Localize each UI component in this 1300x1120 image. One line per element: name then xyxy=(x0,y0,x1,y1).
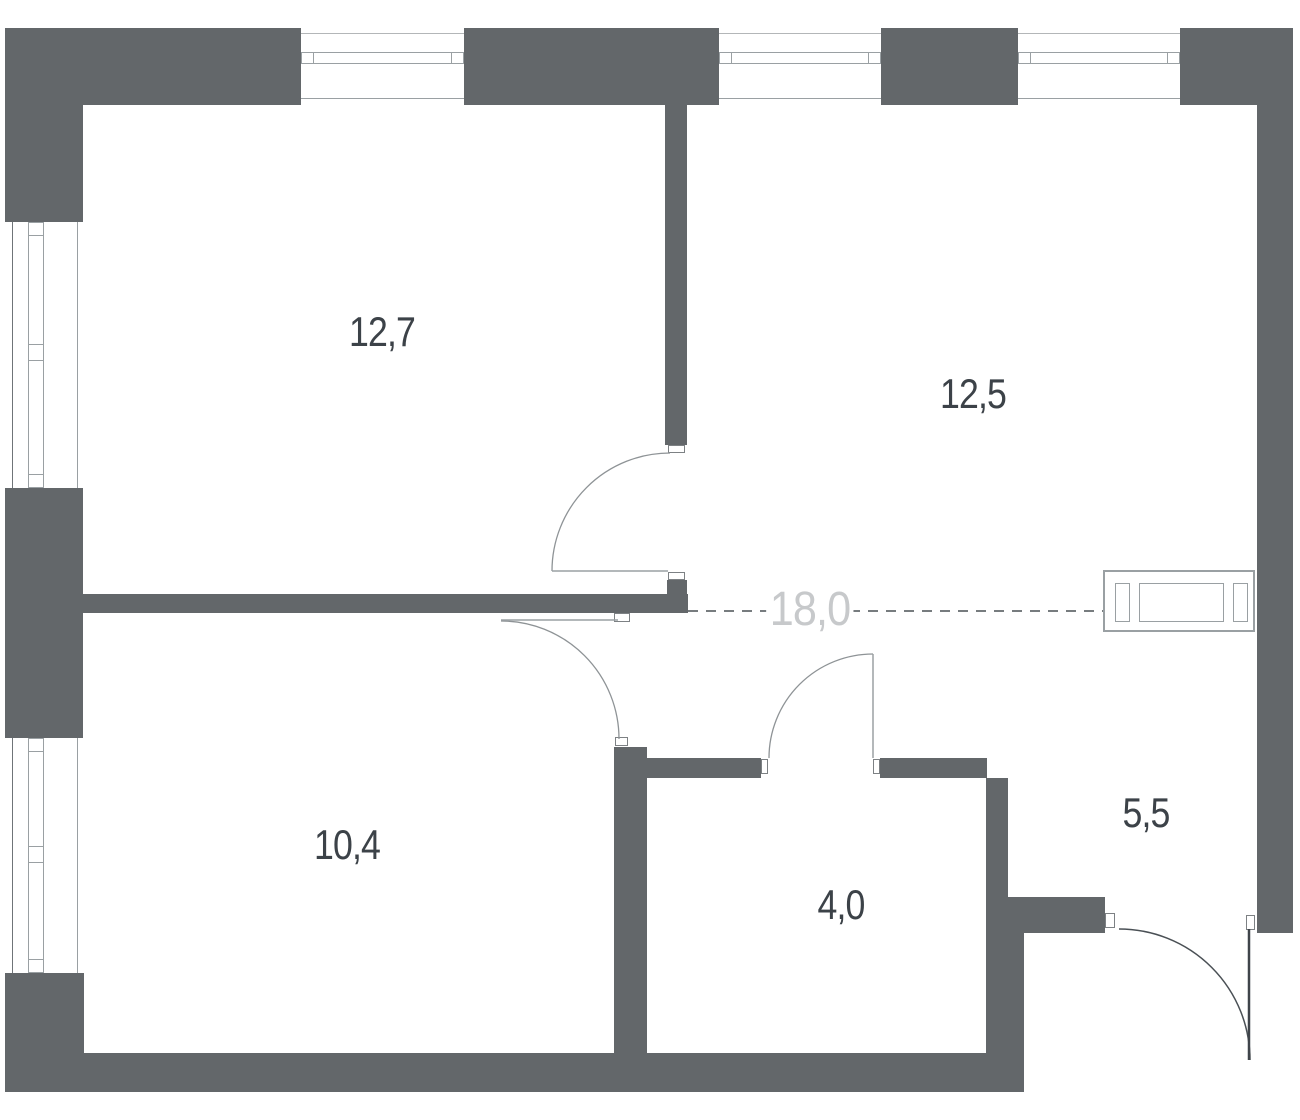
wall-left-upper xyxy=(5,105,83,222)
window-divider xyxy=(28,474,44,475)
wall-partition-rooms xyxy=(665,105,687,445)
window-divider xyxy=(28,360,44,361)
door-jamb xyxy=(615,737,628,746)
floor-plan: 12,7 12,5 10,4 4,0 5,5 18,0 xyxy=(0,0,1300,1120)
wall-bathroom-right-upper xyxy=(986,778,1008,897)
window-divider xyxy=(28,344,44,345)
window-frame xyxy=(301,52,464,64)
radiator-cell xyxy=(1233,583,1248,622)
wall-bathroom-left xyxy=(614,747,647,1053)
door-jamb xyxy=(668,445,685,453)
window-frame xyxy=(1018,52,1180,64)
door-jamb xyxy=(668,572,685,580)
wall-partition-nib xyxy=(667,580,687,594)
wall-right xyxy=(1257,105,1293,933)
window-divider xyxy=(28,862,44,863)
window-divider xyxy=(313,52,314,64)
radiator-cell xyxy=(1115,583,1130,622)
door-arc-bathroom xyxy=(769,654,873,758)
window-divider xyxy=(868,52,869,64)
wall-left-middle xyxy=(5,488,83,738)
window-divider xyxy=(28,846,44,847)
door-jamb xyxy=(614,613,630,622)
wall-top-mid-1 xyxy=(464,28,719,105)
wall-left-lower xyxy=(5,973,84,1092)
wall-top-left xyxy=(5,28,301,105)
wall-bottom xyxy=(84,1053,1024,1092)
door-jamb xyxy=(761,759,768,774)
wall-bathroom-top-left xyxy=(647,758,761,778)
window-divider xyxy=(28,959,44,960)
door-arc-room-bottom-left xyxy=(501,621,619,739)
window-divider xyxy=(451,52,452,64)
room-area-label-10-4: 10,4 xyxy=(314,824,380,866)
window-divider xyxy=(28,751,44,752)
window-top-3 xyxy=(1018,33,1180,99)
window-frame xyxy=(28,738,44,973)
wall-top-right xyxy=(1180,28,1293,105)
wall-entry-stub xyxy=(986,897,1105,933)
wall-horizontal-middle xyxy=(83,594,688,613)
window-top-2 xyxy=(719,33,881,99)
room-area-label-12-7: 12,7 xyxy=(349,311,415,353)
window-frame xyxy=(719,52,881,64)
window-top-1 xyxy=(301,33,464,99)
window-left-upper xyxy=(12,222,78,488)
wall-top-mid-2 xyxy=(881,28,1018,105)
radiator-symbol xyxy=(1103,570,1255,632)
wall-bathroom-right-lower xyxy=(986,933,1024,1053)
radiator-cell xyxy=(1139,583,1224,622)
door-jamb xyxy=(1105,913,1115,928)
room-area-label-5-5: 5,5 xyxy=(1122,792,1169,834)
window-left-lower xyxy=(12,738,78,973)
door-jamb xyxy=(1246,915,1255,930)
wall-bathroom-top-right xyxy=(880,758,987,778)
window-divider xyxy=(1030,52,1031,64)
window-divider xyxy=(1167,52,1168,64)
window-frame xyxy=(28,222,44,488)
door-arc-entrance xyxy=(1119,929,1250,1060)
window-divider xyxy=(28,235,44,236)
total-area-label: 18,0 xyxy=(766,586,854,634)
room-area-label-12-5: 12,5 xyxy=(940,373,1006,415)
window-divider xyxy=(731,52,732,64)
room-area-label-4-0: 4,0 xyxy=(817,884,864,926)
door-jamb xyxy=(873,759,880,774)
door-swings-overlay xyxy=(0,0,1300,1120)
door-arc-room-top-left xyxy=(552,453,670,571)
